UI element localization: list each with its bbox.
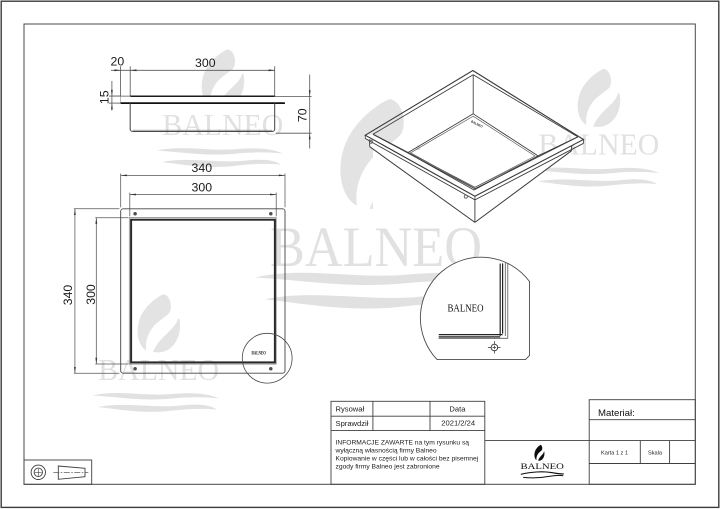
svg-text:340: 340 [192, 161, 213, 175]
svg-text:BALNEO: BALNEO [448, 304, 484, 315]
svg-text:300: 300 [84, 284, 98, 305]
svg-text:300: 300 [195, 56, 216, 70]
svg-text:Kopiowanie w części lub w cało: Kopiowanie w części lub w całości bez pi… [336, 456, 479, 463]
svg-text:BALNEO: BALNEO [251, 352, 266, 357]
svg-text:INFORMACJE ZAWARTE na tym rysu: INFORMACJE ZAWARTE na tym rysunku są [336, 439, 470, 446]
svg-text:zgody firmy Balneo jest zabron: zgody firmy Balneo jest zabronione [336, 464, 440, 471]
svg-text:Karta 1 z 1: Karta 1 z 1 [601, 451, 628, 457]
svg-text:300: 300 [192, 181, 213, 195]
svg-text:70: 70 [295, 108, 309, 122]
svg-text:Rysował: Rysował [336, 405, 365, 414]
svg-text:BALNEO: BALNEO [521, 461, 564, 471]
svg-text:20: 20 [111, 55, 125, 69]
svg-text:2021/2/24: 2021/2/24 [441, 419, 475, 428]
svg-text:340: 340 [61, 285, 75, 306]
svg-text:Materiał:: Materiał: [598, 408, 635, 419]
svg-text:Skala: Skala [648, 451, 663, 457]
svg-text:Sprawdził: Sprawdził [336, 419, 369, 428]
svg-text:wyłączną własnością firmy Baln: wyłączną własnością firmy Balneo [335, 447, 437, 454]
svg-text:Data: Data [449, 404, 466, 413]
svg-text:15: 15 [98, 90, 112, 104]
